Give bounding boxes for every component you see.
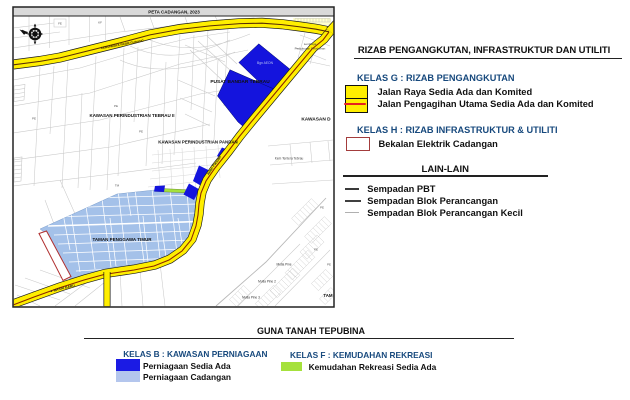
svg-text:FE: FE	[58, 22, 62, 26]
svg-text:PE: PE	[320, 206, 324, 210]
svg-text:PE: PE	[314, 248, 318, 252]
svg-text:Perkuburan Pelabuhan: Perkuburan Pelabuhan	[295, 47, 326, 51]
svg-text:KAWASAN PERINDUSTRIAN TEBRAU I: KAWASAN PERINDUSTRIAN TEBRAU II	[89, 113, 174, 118]
svg-text:Mutia Pine: Mutia Pine	[276, 263, 291, 267]
svg-text:TM: TM	[115, 184, 120, 188]
svg-text:PE: PE	[114, 104, 118, 108]
svg-text:TAMAN PENGGAWA TIMUR: TAMAN PENGGAWA TIMUR	[93, 237, 153, 242]
svg-text:KF: KF	[98, 21, 102, 25]
svg-text:Bgn AEON: Bgn AEON	[257, 61, 274, 65]
svg-text:PE: PE	[32, 117, 36, 121]
svg-text:Lembaga: Lembaga	[304, 42, 317, 46]
svg-text:Mutia Pine 3: Mutia Pine 3	[242, 296, 260, 300]
svg-text:Mutia Pine 2: Mutia Pine 2	[258, 280, 276, 284]
svg-text:PETA CADANGAN, 2023: PETA CADANGAN, 2023	[148, 10, 200, 15]
svg-text:KAWASAN D: KAWASAN D	[301, 117, 331, 123]
svg-text:PE: PE	[327, 263, 331, 267]
svg-text:PE: PE	[139, 130, 143, 134]
svg-text:Kem Tentera Tebrau: Kem Tentera Tebrau	[275, 157, 304, 161]
svg-text:TAM: TAM	[323, 293, 333, 298]
svg-text:PUSAT BANDAR TEBRAU: PUSAT BANDAR TEBRAU	[210, 79, 270, 85]
svg-text:KAWASAN PERINDUSTRIAN PANDAN: KAWASAN PERINDUSTRIAN PANDAN	[158, 140, 237, 145]
